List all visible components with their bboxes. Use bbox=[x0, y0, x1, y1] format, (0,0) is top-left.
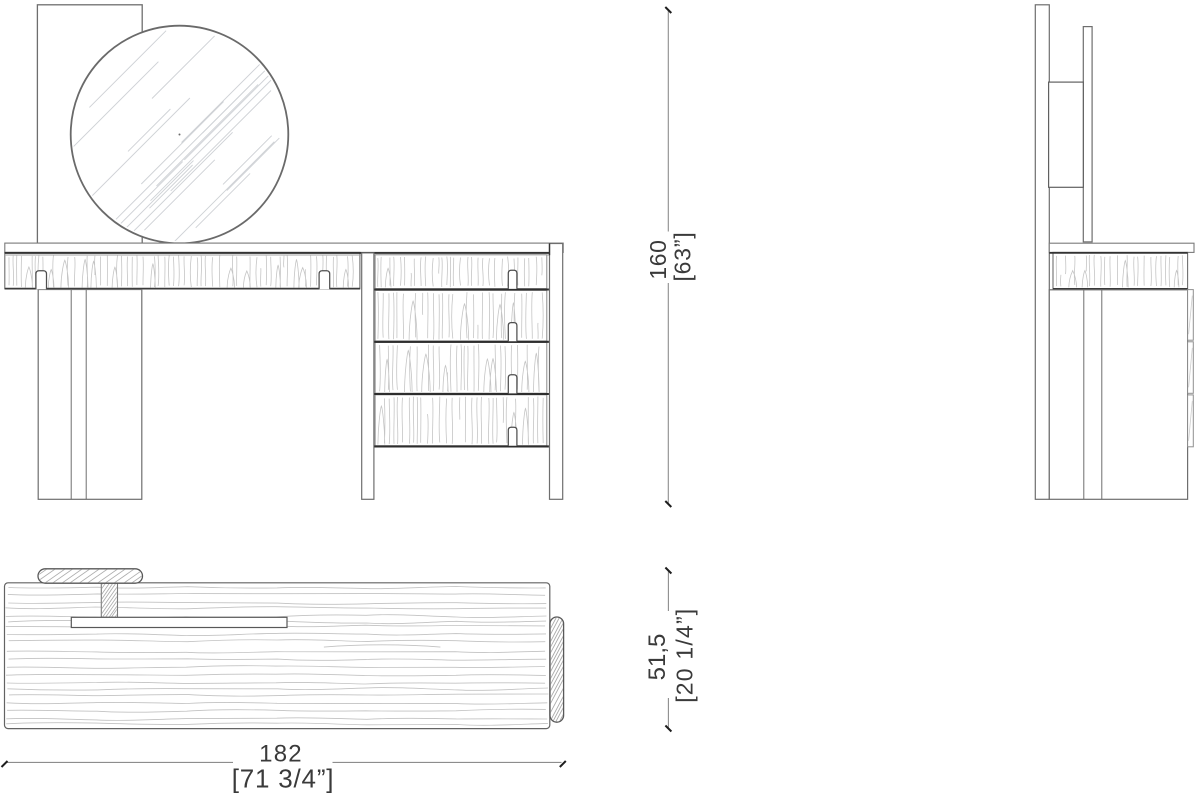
svg-text:[71 3/4”]: [71 3/4”] bbox=[232, 764, 335, 794]
svg-text:160: 160 bbox=[645, 239, 671, 279]
svg-text:[20 1/4”]: [20 1/4”] bbox=[671, 608, 697, 703]
svg-text:51,5: 51,5 bbox=[644, 634, 671, 681]
svg-text:[63”]: [63”] bbox=[669, 231, 695, 281]
